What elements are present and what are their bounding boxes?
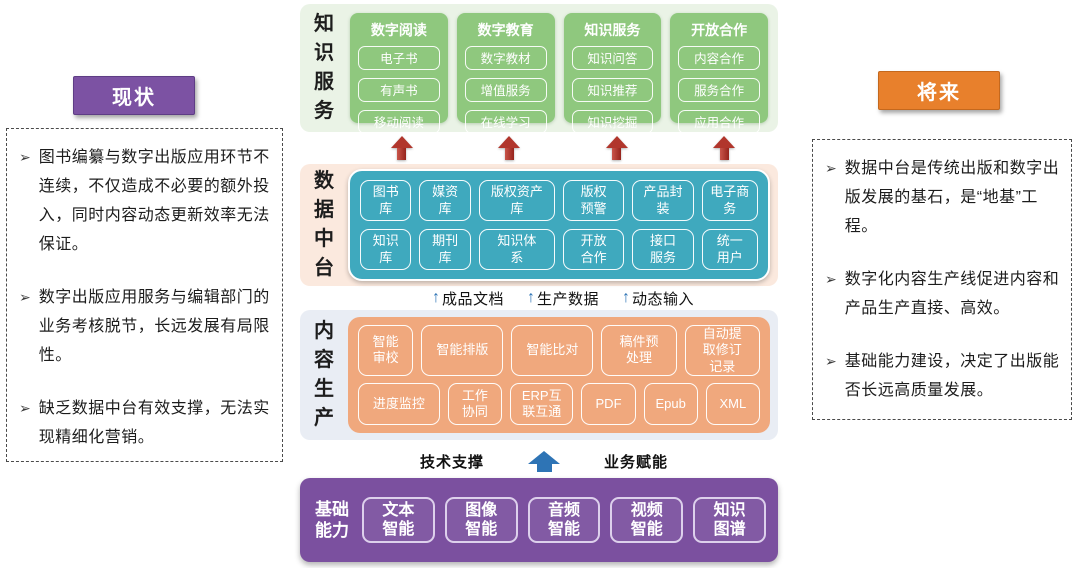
capability-item-text: 文本智能 [362, 497, 435, 543]
capability-item-knowledge-graph: 知识图谱 [693, 497, 766, 543]
column-title: 开放合作 [670, 20, 768, 40]
up-arrow-icon: ↑ [622, 290, 630, 306]
bullet-arrow-icon: ➢ [823, 347, 837, 405]
production-cell: XML [706, 383, 760, 425]
flow-item: ↑ 成品文档 [432, 288, 504, 309]
red-up-arrow-icon [391, 136, 413, 160]
service-columns: 数字阅读 电子书 有声书 移动阅读 数字教育 数字教材 增值服务 在线学习 知识… [348, 4, 778, 132]
bullet-text: 图书编纂与数字出版应用环节不连续，不仅造成不必要的额外投入，同时内容动态更新效率… [39, 143, 272, 259]
bullet-arrow-icon: ➢ [823, 265, 837, 323]
bullet-text: 数字化内容生产线促进内容和产品生产直接、高效。 [845, 265, 1061, 323]
status-bullet-2: ➢ 数字出版应用服务与编辑部门的业务考核脱节，长远发展有局限性。 [17, 283, 272, 370]
knowledge-service-layer: 知识服务 数字阅读 电子书 有声书 移动阅读 数字教育 数字教材 增值服务 在线… [300, 4, 778, 132]
status-bullet-1: ➢ 图书编纂与数字出版应用环节不连续，不仅造成不必要的额外投入，同时内容动态更新… [17, 143, 272, 259]
column-title: 数字阅读 [350, 20, 448, 40]
data-platform-row: 图书库 媒资库 版权资产库 版权预警 产品封装 电子商务 [360, 180, 758, 221]
base-capability-label: 基础能力 [312, 499, 352, 542]
service-item: 移动阅读 [358, 110, 440, 134]
service-column-open-cooperation: 开放合作 内容合作 服务合作 应用合作 [670, 13, 768, 123]
architecture-stack: 知识服务 数字阅读 电子书 有声书 移动阅读 数字教育 数字教材 增值服务 在线… [300, 4, 778, 564]
future-panel: ➢ 数据中台是传统出版和数字出版发展的基石，是“地基”工程。 ➢ 数字化内容生产… [812, 139, 1072, 420]
bullet-arrow-icon: ➢ [17, 283, 31, 370]
column-title: 知识服务 [564, 20, 662, 40]
flow-item: ↑ 动态输入 [622, 288, 694, 309]
future-bullet-1: ➢ 数据中台是传统出版和数字出版发展的基石，是“地基”工程。 [823, 154, 1061, 241]
production-cell: 智能比对 [511, 325, 593, 376]
status-bullet-3: ➢ 缺乏数据中台有效支撑，无法实现精细化营销。 [17, 394, 272, 452]
up-arrow-icon: ↑ [527, 290, 535, 306]
current-status-header: 现状 [73, 76, 195, 115]
data-cell: 版权资产库 [479, 180, 555, 221]
flow-label: 生产数据 [537, 288, 599, 309]
layer-label-cell: 数据中台 [300, 164, 348, 286]
production-cell: Epub [644, 383, 698, 425]
up-arrow-icon: ↑ [432, 290, 440, 306]
data-platform-label: 数据中台 [313, 167, 335, 283]
data-platform-row: 知识库 期刊库 知识体系 开放合作 接口服务 统一用户 [360, 229, 758, 270]
service-column-digital-education: 数字教育 数字教材 增值服务 在线学习 [457, 13, 555, 123]
production-row: 智能审校 智能排版 智能比对 稿件预处理 自动提取修订记录 [358, 325, 760, 376]
column-title: 数字教育 [457, 20, 555, 40]
bullet-text: 缺乏数据中台有效支撑，无法实现精细化营销。 [39, 394, 272, 452]
bullet-arrow-icon: ➢ [17, 143, 31, 259]
data-cell: 版权预警 [563, 180, 624, 221]
blue-up-arrow-icon [528, 451, 560, 472]
data-cell: 产品封装 [632, 180, 693, 221]
production-cell: 稿件预处理 [601, 325, 676, 376]
flow-item: ↑ 生产数据 [527, 288, 599, 309]
service-item: 知识推荐 [572, 78, 654, 102]
red-arrows-row [300, 132, 778, 164]
flow-labels-row: ↑ 成品文档 ↑ 生产数据 ↑ 动态输入 [300, 286, 778, 310]
knowledge-service-label: 知识服务 [313, 10, 335, 126]
content-production-label: 内容生产 [313, 317, 335, 433]
future-bullet-2: ➢ 数字化内容生产线促进内容和产品生产直接、高效。 [823, 265, 1061, 323]
base-capability-layer: 基础能力 文本智能 图像智能 音频智能 视频智能 知识图谱 [300, 478, 778, 562]
layer-label-cell: 内容生产 [300, 310, 348, 440]
bullet-arrow-icon: ➢ [17, 394, 31, 452]
layer-label-cell: 知识服务 [300, 4, 348, 132]
flow-label: 动态输入 [632, 288, 694, 309]
data-cell: 开放合作 [563, 229, 624, 270]
bullet-text: 基础能力建设，决定了出版能否长远高质量发展。 [845, 347, 1061, 405]
production-cell: 智能审校 [358, 325, 413, 376]
service-item: 电子书 [358, 46, 440, 70]
production-cell: 自动提取修订记录 [685, 325, 760, 376]
data-cell: 统一用户 [702, 229, 758, 270]
data-cell: 电子商务 [702, 180, 758, 221]
service-item: 内容合作 [678, 46, 760, 70]
support-row: 技术支撑 业务赋能 [300, 444, 778, 478]
data-platform-layer: 数据中台 图书库 媒资库 版权资产库 版权预警 产品封装 电子商务 知识库 期刊… [300, 164, 778, 286]
red-up-arrow-icon [606, 136, 628, 160]
red-up-arrow-icon [498, 136, 520, 160]
current-status-panel: ➢ 图书编纂与数字出版应用环节不连续，不仅造成不必要的额外投入，同时内容动态更新… [6, 128, 283, 462]
production-cell: 智能排版 [421, 325, 503, 376]
capability-item-audio: 音频智能 [528, 497, 601, 543]
bullet-arrow-icon: ➢ [823, 154, 837, 241]
production-cell: ERP互联互通 [510, 383, 573, 425]
service-item: 应用合作 [678, 110, 760, 134]
service-item: 有声书 [358, 78, 440, 102]
content-production-layer: 内容生产 智能审校 智能排版 智能比对 稿件预处理 自动提取修订记录 进度监控 … [300, 310, 778, 440]
future-bullet-3: ➢ 基础能力建设，决定了出版能否长远高质量发展。 [823, 347, 1061, 405]
bullet-text: 数据中台是传统出版和数字出版发展的基石，是“地基”工程。 [845, 154, 1061, 241]
bullet-text: 数字出版应用服务与编辑部门的业务考核脱节，长远发展有局限性。 [39, 283, 272, 370]
tech-support-label: 技术支撑 [420, 451, 484, 472]
digital-publishing-diagram: 现状 ➢ 图书编纂与数字出版应用环节不连续，不仅造成不必要的额外投入，同时内容动… [0, 0, 1080, 568]
red-up-arrow-icon [713, 136, 735, 160]
service-item: 在线学习 [465, 110, 547, 134]
service-column-knowledge-service: 知识服务 知识问答 知识推荐 知识挖掘 [564, 13, 662, 123]
production-cell: 进度监控 [358, 383, 440, 425]
production-row: 进度监控 工作协同 ERP互联互通 PDF Epub XML [358, 383, 760, 425]
data-platform-box: 图书库 媒资库 版权资产库 版权预警 产品封装 电子商务 知识库 期刊库 知识体… [348, 169, 770, 281]
service-column-digital-reading: 数字阅读 电子书 有声书 移动阅读 [350, 13, 448, 123]
content-production-box: 智能审校 智能排版 智能比对 稿件预处理 自动提取修订记录 进度监控 工作协同 … [348, 317, 770, 433]
spacer [300, 132, 348, 164]
data-cell: 图书库 [360, 180, 411, 221]
data-cell: 知识体系 [479, 229, 555, 270]
data-cell: 期刊库 [419, 229, 470, 270]
service-item: 数字教材 [465, 46, 547, 70]
production-cell: PDF [581, 383, 635, 425]
capability-item-image: 图像智能 [445, 497, 518, 543]
service-item: 增值服务 [465, 78, 547, 102]
data-cell: 媒资库 [419, 180, 470, 221]
production-cell: 工作协同 [448, 383, 502, 425]
data-cell: 接口服务 [632, 229, 693, 270]
service-item: 知识问答 [572, 46, 654, 70]
data-cell: 知识库 [360, 229, 411, 270]
future-header: 将来 [878, 71, 1000, 110]
flow-label: 成品文档 [442, 288, 504, 309]
service-item: 知识挖掘 [572, 110, 654, 134]
service-item: 服务合作 [678, 78, 760, 102]
business-enable-label: 业务赋能 [604, 451, 668, 472]
capability-item-video: 视频智能 [610, 497, 683, 543]
